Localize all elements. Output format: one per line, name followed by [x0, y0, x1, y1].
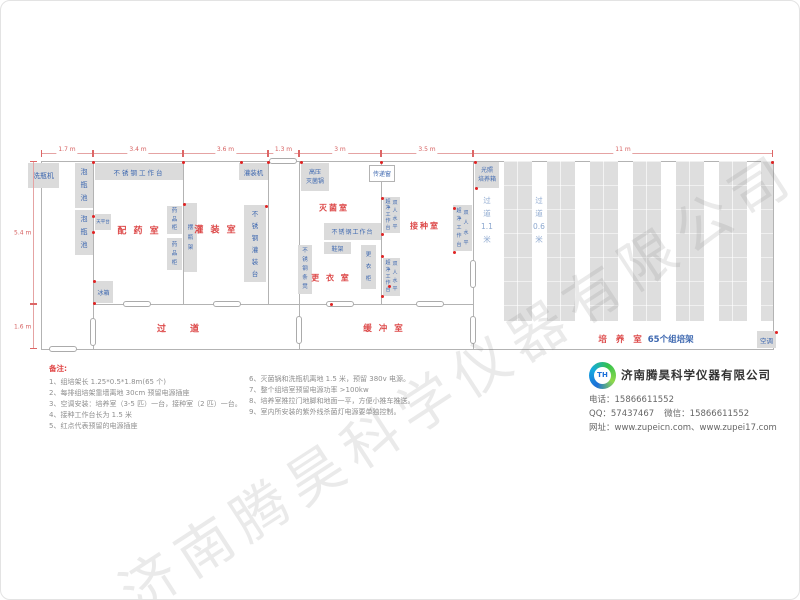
door-opening [269, 158, 297, 164]
air-conditioner-box: 空调 [757, 331, 776, 348]
dimension-top: 3.6 m [183, 149, 268, 157]
note-item: 1、组培架长 1.25*0.5*1.8m(65 个) [49, 377, 242, 388]
corridor-1-1m-label: 过 道 1.1 米 [479, 194, 495, 246]
note-item: 3、空调安装：培养室（3-5 匹）一台，接种室（2 匹）一台。 [49, 399, 242, 410]
dimension-top: 3.4 m [93, 149, 183, 157]
culture-room-rack-count: 65个组培架 [645, 335, 694, 345]
dimension-top: 11 m [473, 149, 773, 157]
door-opening [49, 346, 77, 352]
dimension-top: 3 m [299, 149, 381, 157]
dimension-left: 1.6 m [29, 304, 37, 349]
medicine-cabinet-1-box: 药 品 柜 [167, 206, 182, 234]
room-label-sterilization: 灭菌室 [319, 203, 349, 214]
dimension-top: 1.3 m [268, 149, 299, 157]
dimension-label: 3.6 m [215, 146, 236, 154]
company-logo-text: TH [589, 359, 616, 390]
company-qq-line: QQ：57437467微信：15866611552 [589, 407, 749, 419]
clean-bench-3-box: 双 人 水 平超 净 工 作 台 [453, 205, 472, 251]
dimension-top: 3.5 m [381, 149, 473, 157]
ss-workbench-2-box: 不锈钢工作台 [324, 223, 381, 240]
wall-segment [41, 161, 42, 350]
wechat-value: 15866611552 [690, 409, 750, 419]
door-opening [90, 318, 96, 346]
web-label: 网址： [589, 423, 615, 433]
dimension-label: 3.4 m [127, 146, 148, 154]
note-item: 6、灭菌锅和洗瓶机离地 1.5 米，预留 380v 电源。 [249, 374, 414, 385]
note-item: 5、红点代表预留的电源插座 [49, 421, 242, 432]
note-item: 9、室内所安装的紫外线杀菌灯电源要单独控制。 [249, 407, 414, 418]
note-item: 4、接种工作台长为 1.5 米 [49, 410, 242, 421]
balance-table-box: 天平台 [95, 214, 111, 230]
clean-bench-2-box: 双 人 水 平超 净 工 作 台 [383, 258, 400, 296]
company-web-line: 网址：www.zupeicn.com、www.zupei17.com [589, 421, 777, 433]
dimension-left: 5.4 m [29, 161, 37, 304]
dimension-label: 1.6 m [13, 322, 32, 331]
dimension-label: 1.3 m [273, 146, 294, 154]
power-outlet-dot [771, 161, 774, 164]
shoe-rack-box: 鞋架 [324, 242, 351, 254]
culture-rack-row [761, 161, 773, 321]
power-outlet-dot [92, 231, 95, 234]
floor-plan-screenshot: 洗瓶机泡 瓶 池泡 瓶 池不锈钢工作台天平台药 品 柜药 品 柜冰箱摆 瓶 架不… [0, 0, 800, 600]
power-outlet-dot [453, 207, 456, 210]
refrigerator-box: 冰箱 [94, 281, 113, 303]
dimension-label: 3 m [332, 146, 348, 154]
notes-column-2: 6、灭菌锅和洗瓶机离地 1.5 米，预留 380v 电源。7、整个组培室预留电源… [249, 374, 414, 418]
ss-bench-box: 不 锈 钢 条 凳 [298, 245, 312, 294]
door-opening [296, 316, 302, 344]
dimension-label: 1.7 m [56, 146, 77, 154]
power-outlet-dot [265, 205, 268, 208]
note-item: 7、整个组培室预留电源功率 >100kw [249, 385, 414, 396]
wechat-label: 微信： [664, 409, 690, 419]
light-incubator-box: 光照 培养箱 [475, 162, 499, 188]
room-label-inoculation: 接种室 [410, 221, 440, 232]
power-outlet-dot [93, 302, 96, 305]
power-outlet-dot [183, 203, 186, 206]
qq-value: 57437467 [611, 409, 654, 419]
door-opening [213, 301, 241, 307]
dimension-label: 5.4 m [13, 228, 32, 237]
power-outlet-dot [92, 215, 95, 218]
power-outlet-dot [381, 255, 384, 258]
door-opening [416, 301, 444, 307]
power-outlet-dot [93, 280, 96, 283]
power-outlet-dot [92, 161, 95, 164]
power-outlet-dot [300, 161, 303, 164]
wall-segment [41, 161, 774, 162]
soak-pool-2-box: 泡 瓶 池 [75, 210, 93, 255]
note-item: 2、每排组培架靠墙离地 30cm 预留电源插座 [49, 388, 242, 399]
transfer-window-box: 传递窗 [369, 165, 395, 182]
room-label-changing: 更 衣 室 [311, 273, 351, 284]
culture-rack-row [633, 161, 661, 321]
power-outlet-dot [267, 161, 270, 164]
medicine-cabinet-2-box: 药 品 柜 [167, 238, 182, 270]
power-outlet-dot [475, 187, 478, 190]
dimension-top: 1.7 m [41, 149, 93, 157]
power-outlet-dot [474, 161, 477, 164]
note-item: 8、培养室推拉门地脚和地面一平，方便小推车推送。 [249, 396, 414, 407]
wall-segment [268, 161, 269, 305]
wall-segment [41, 349, 774, 350]
company-name: 济南腾昊科学仪器有限公司 [621, 367, 771, 383]
power-outlet-dot [453, 251, 456, 254]
autoclave-box: 高压 灭菌锅 [301, 163, 329, 191]
culture-rack-row [590, 161, 618, 321]
bottle-display-rack-box: 摆 瓶 架 [184, 203, 197, 272]
power-outlet-dot [182, 161, 185, 164]
corridor-0-6m-label: 过 道 0.6 米 [531, 194, 547, 246]
power-outlet-dot [330, 303, 333, 306]
phone-value: 15866611552 [615, 395, 675, 405]
dimension-label: 3.5 m [416, 146, 437, 154]
filling-machine-box: 灌装机 [239, 163, 268, 180]
ss-workbench-1-box: 不锈钢工作台 [95, 163, 183, 180]
room-label-preparation: 配 药 室 [117, 224, 160, 237]
culture-rack-row [547, 161, 575, 321]
ss-filling-table-box: 不 锈 钢 灌 装 台 [244, 205, 266, 282]
clean-bench-1-box: 双 人 水 平超 净 工 作 台 [383, 197, 400, 233]
power-outlet-dot [381, 233, 384, 236]
qq-label: QQ： [589, 409, 611, 419]
locker-box: 更 衣 柜 [361, 245, 376, 289]
culture-room-name: 培 养 室 [598, 335, 644, 345]
power-outlet-dot [775, 331, 778, 334]
room-label-corridor: 过 道 [157, 322, 201, 335]
power-outlet-dot [381, 197, 384, 200]
phone-label: 电话： [589, 395, 615, 405]
culture-room-label: 培 养 室 65个组培架 [561, 333, 731, 345]
wall-segment [773, 161, 774, 350]
notes-title: 备注: [49, 363, 242, 374]
power-outlet-dot [381, 295, 384, 298]
room-label-filling: 灌 装 室 [194, 223, 237, 236]
notes-column-1: 1、组培架长 1.25*0.5*1.8m(65 个)2、每排组培架靠墙离地 30… [49, 377, 242, 432]
power-outlet-dot [240, 161, 243, 164]
culture-rack-row [676, 161, 704, 321]
room-label-buffer: 缓 冲 室 [363, 322, 404, 334]
power-outlet-dot [380, 161, 383, 164]
power-outlet-dot [388, 285, 391, 288]
web-value: www.zupeicn.com、www.zupei17.com [615, 423, 777, 433]
company-phone-line: 电话：15866611552 [589, 393, 674, 405]
notes-section: 备注: 1、组培架长 1.25*0.5*1.8m(65 个)2、每排组培架靠墙离… [49, 363, 242, 432]
dimension-label: 11 m [613, 146, 632, 154]
soak-pool-1-box: 泡 瓶 池 [75, 163, 93, 208]
culture-rack-row [504, 161, 532, 321]
culture-rack-row [719, 161, 747, 321]
door-opening [123, 301, 151, 307]
door-opening [470, 316, 476, 344]
floor-plan-drawing: 洗瓶机泡 瓶 池泡 瓶 池不锈钢工作台天平台药 品 柜药 品 柜冰箱摆 瓶 架不… [1, 1, 800, 600]
door-opening [470, 260, 476, 288]
